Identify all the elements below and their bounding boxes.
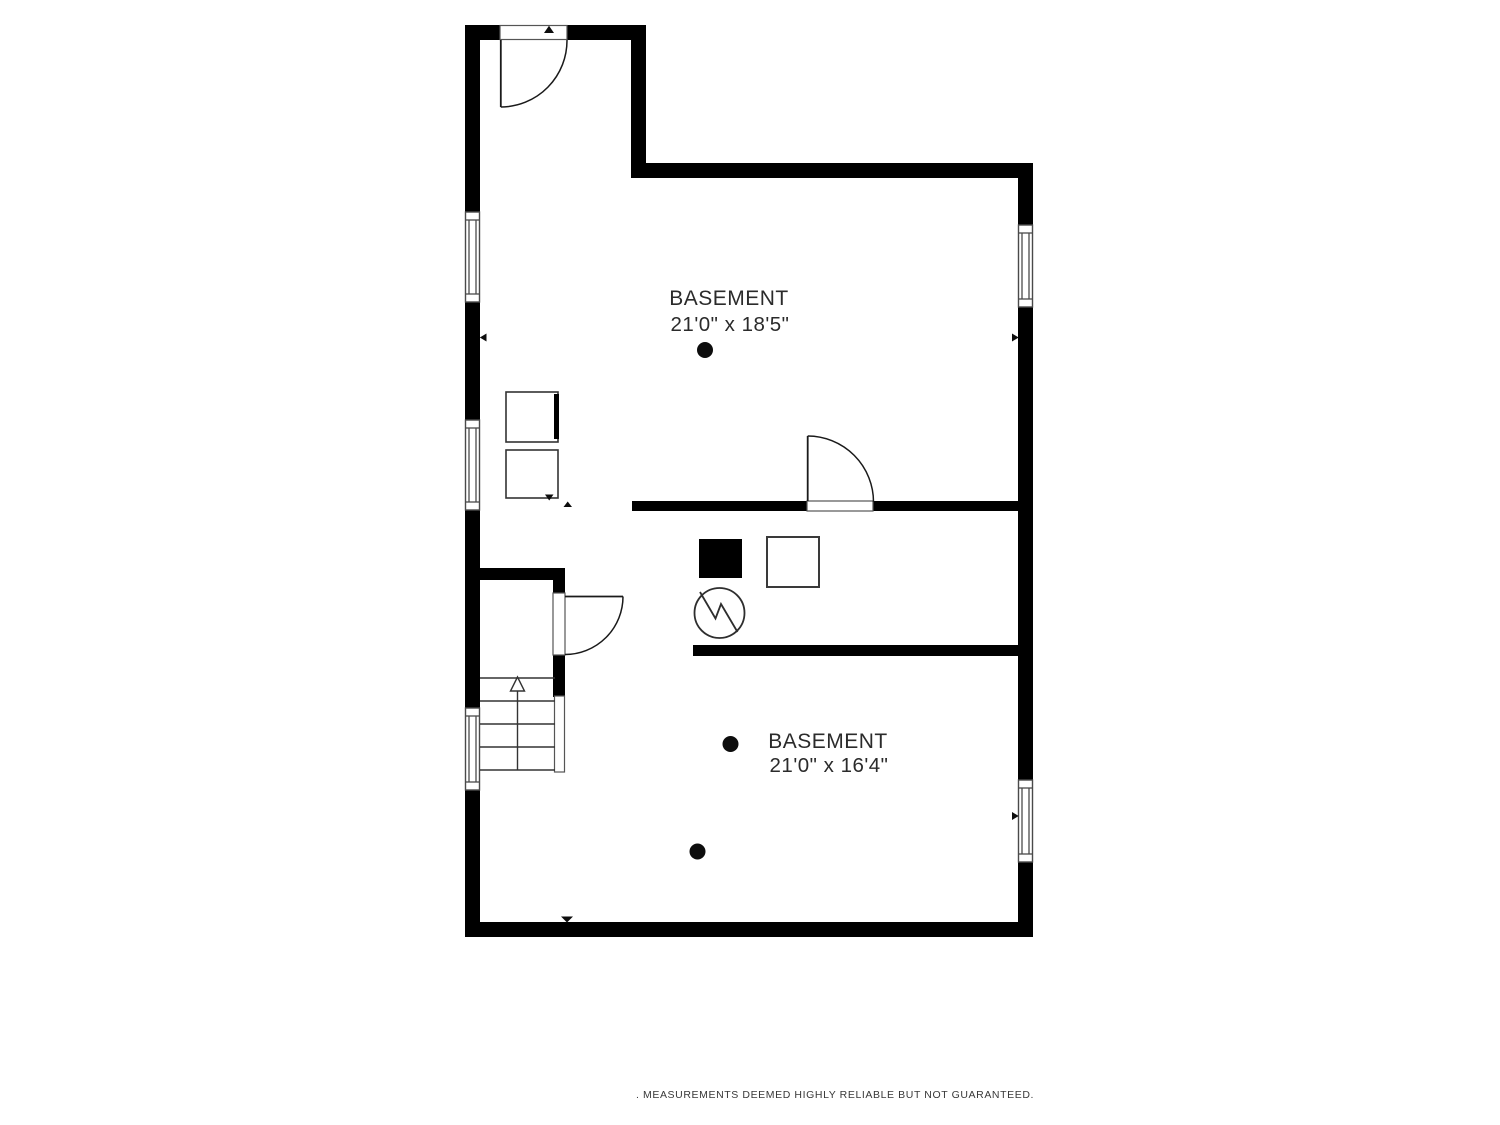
utility-box-icon xyxy=(767,537,819,587)
measurements-disclaimer: . MEASUREMENTS DEEMED HIGHLY RELIABLE BU… xyxy=(636,1089,1034,1101)
room-dimensions-lower: 21'0" x 16'4" xyxy=(770,754,889,777)
door-interior-upper-wall xyxy=(807,436,874,511)
appliance-squares xyxy=(506,392,572,507)
window-right-2 xyxy=(1019,780,1033,862)
window-left-2 xyxy=(466,420,480,510)
stair-wall-opening xyxy=(555,696,565,772)
floorplan-page: BASEMENT 21'0" x 18'5" BASEMENT 21'0" x … xyxy=(0,0,1500,1125)
window-left-3 xyxy=(466,708,480,790)
stairs-up-arrow-icon xyxy=(511,677,525,691)
room-label-lower: BASEMENT xyxy=(768,730,888,753)
door-entry-top xyxy=(500,26,567,108)
window-right-1 xyxy=(1019,225,1033,307)
fixture-dot-lower-room-2 xyxy=(690,844,706,860)
marker-arrow-right-wall-upper-icon xyxy=(1012,334,1019,342)
wall-exterior-top-main-section xyxy=(631,163,1033,178)
marker-arrow-bottom-wall-icon xyxy=(561,917,573,923)
door-stairwell xyxy=(553,593,623,655)
wall-stair-enclosure-right-lower xyxy=(553,655,565,697)
floorplan-drawing: BASEMENT 21'0" x 18'5" BASEMENT 21'0" x … xyxy=(0,0,1500,1125)
marker-arrow-left-wall-icon xyxy=(480,334,487,342)
marker-arrow-right-wall-lower-icon xyxy=(1012,812,1019,820)
fixture-dot-upper-room xyxy=(697,342,713,358)
window-left-1 xyxy=(466,212,480,302)
furnace-icon xyxy=(699,539,742,578)
room-dimensions-upper: 21'0" x 18'5" xyxy=(671,313,790,336)
passage-arrow-up-icon xyxy=(564,502,573,508)
fixture-dot-lower-room-1 xyxy=(723,736,739,752)
staircase xyxy=(480,677,555,770)
wall-interior-lower xyxy=(693,645,1018,656)
wall-exterior-step-vertical xyxy=(631,25,646,178)
room-label-upper: BASEMENT xyxy=(669,287,789,310)
wall-stair-enclosure-top xyxy=(480,568,563,580)
wall-exterior-bottom xyxy=(465,922,1033,937)
electrical-meter-icon xyxy=(695,588,745,638)
wall-stair-enclosure-right-upper xyxy=(553,568,565,593)
